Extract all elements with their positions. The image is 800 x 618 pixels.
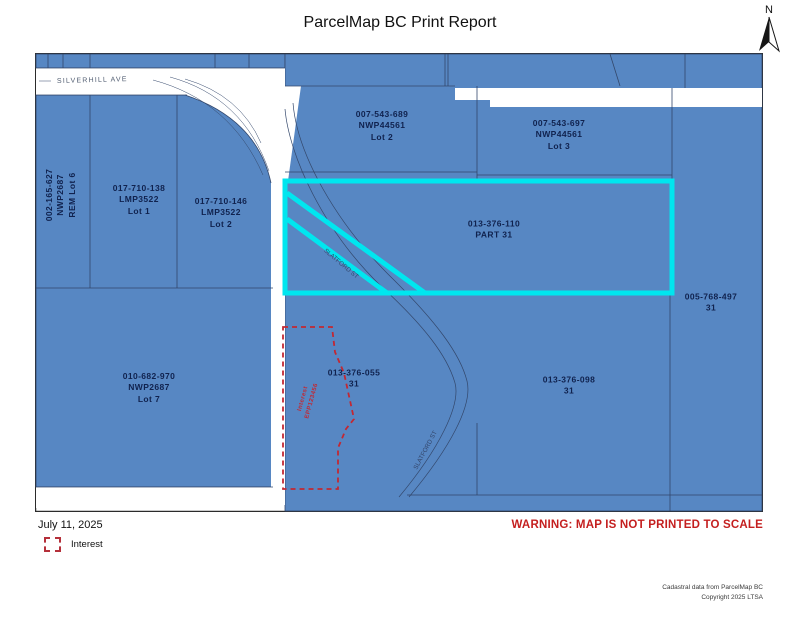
interest-legend-label: Interest: [71, 539, 103, 550]
interest-legend-swatch: [44, 537, 61, 552]
road-bottom: [36, 487, 273, 508]
parcel-label-part31: 013-376-110 PART 31: [468, 219, 520, 242]
credit-copyright: Copyright 2025 LTSA: [662, 593, 763, 603]
parcel-label-rem-lot6: 002-165-627 NWP2687 REM Lot 6: [44, 169, 78, 222]
parcel-label-nwp-lot2: 007-543-689 NWP44561 Lot 2: [356, 109, 409, 143]
report-date: July 11, 2025: [38, 519, 103, 531]
credit-source: Cadastral data from ParcelMap BC: [662, 583, 763, 593]
parcel-label-p098: 013-376-098 31: [543, 375, 596, 398]
print-report-page: ParcelMap BC Print Report N: [0, 0, 800, 618]
north-arrow: N: [756, 4, 784, 54]
legend: Interest: [44, 536, 103, 552]
page-title: ParcelMap BC Print Report: [0, 14, 800, 32]
parcel-label-p497: 005-768-497 31: [685, 292, 738, 315]
map-canvas: SILVERHILL AVE SLATFORD ST SLATFORD ST 0…: [35, 53, 763, 512]
parcel-label-lmp-lot2: 017-710-146 LMP3522 Lot 2: [195, 196, 248, 230]
scale-warning: WARNING: MAP IS NOT PRINTED TO SCALE: [512, 519, 763, 531]
parcel-label-lot7: 010-682-970 NWP2687 Lot 7: [123, 371, 176, 405]
map-credits: Cadastral data from ParcelMap BC Copyrig…: [662, 583, 763, 604]
parcel-label-lmp-lot1: 017-710-138 LMP3522 Lot 1: [113, 183, 166, 217]
parcel-label-p055: 013-376-055 31: [328, 368, 381, 391]
parcel-label-nwp-lot3: 007-543-697 NWP44561 Lot 3: [533, 118, 586, 152]
north-label: N: [765, 4, 773, 16]
